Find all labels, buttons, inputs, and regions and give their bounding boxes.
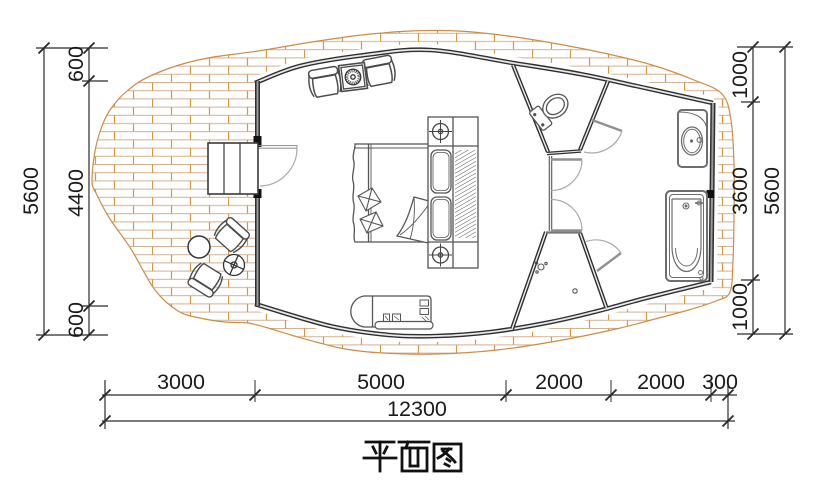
- svg-text:3600: 3600: [728, 167, 752, 215]
- svg-text:2000: 2000: [637, 370, 685, 394]
- svg-text:4400: 4400: [64, 169, 88, 217]
- svg-text:1000: 1000: [728, 283, 752, 331]
- svg-text:600: 600: [64, 302, 88, 338]
- svg-text:600: 600: [64, 46, 88, 82]
- svg-text:1000: 1000: [728, 51, 752, 99]
- svg-text:2000: 2000: [535, 370, 583, 394]
- svg-text:12300: 12300: [387, 397, 447, 421]
- svg-text:5600: 5600: [19, 167, 43, 215]
- svg-text:5600: 5600: [760, 167, 784, 215]
- svg-text:300: 300: [702, 370, 738, 394]
- svg-text:3000: 3000: [157, 370, 205, 394]
- svg-text:5000: 5000: [357, 370, 405, 394]
